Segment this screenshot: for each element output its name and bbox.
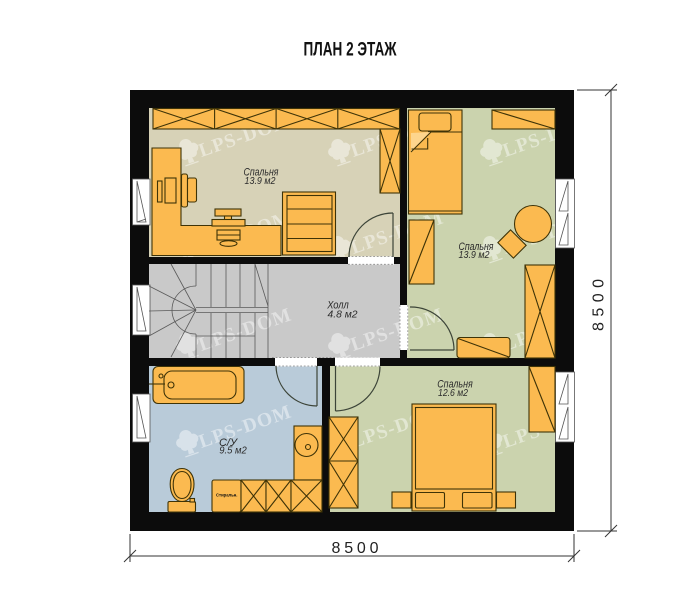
svg-text:Стиральн.: Стиральн. [216,493,237,498]
svg-text:13.9 м2: 13.9 м2 [459,250,490,261]
svg-text:12.6 м2: 12.6 м2 [438,388,468,399]
svg-text:ПЛАН 2 ЭТАЖ: ПЛАН 2 ЭТАЖ [304,40,398,61]
svg-text:8500: 8500 [591,279,608,331]
svg-text:9.5 м2: 9.5 м2 [219,446,247,457]
svg-text:4.8 м2: 4.8 м2 [328,310,358,321]
svg-text:13.9 м2: 13.9 м2 [245,176,276,187]
svg-text:8500: 8500 [332,540,379,557]
